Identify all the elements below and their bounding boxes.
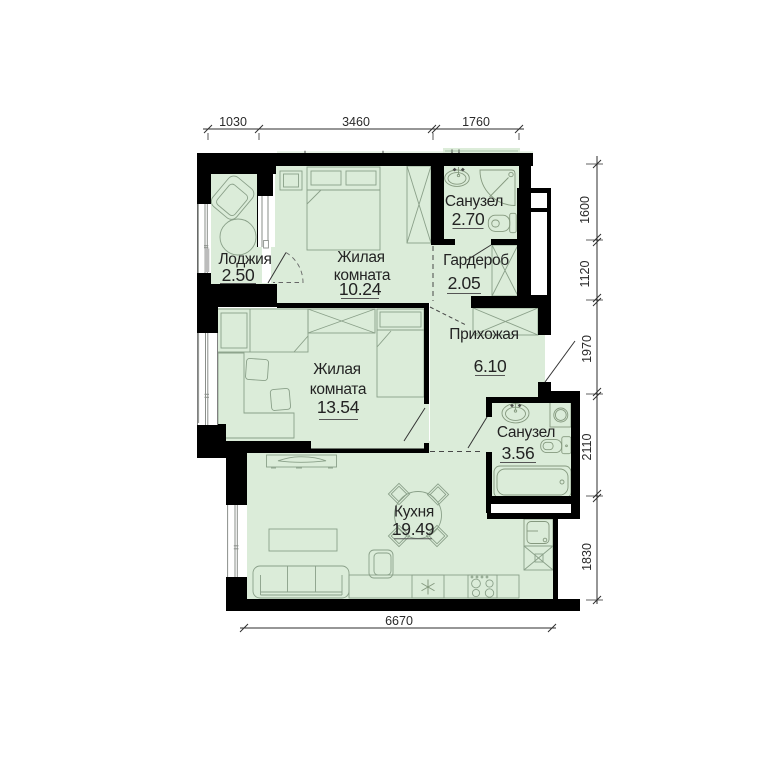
svg-text:1600: 1600 (578, 196, 592, 224)
svg-text:13.54: 13.54 (317, 397, 360, 417)
svg-text:6.10: 6.10 (474, 356, 507, 376)
svg-text:Жилая: Жилая (313, 361, 361, 378)
svg-text:10.24: 10.24 (339, 279, 382, 299)
svg-text:2.50: 2.50 (222, 265, 255, 285)
svg-text:2.70: 2.70 (452, 209, 485, 229)
svg-text:19.49: 19.49 (392, 519, 434, 539)
svg-text:комната: комната (310, 381, 367, 398)
svg-text:1830: 1830 (580, 543, 594, 571)
svg-text:1120: 1120 (578, 261, 592, 288)
svg-text:1030: 1030 (219, 115, 247, 129)
svg-text:Жилая: Жилая (337, 249, 385, 266)
svg-text:Санузел: Санузел (497, 424, 555, 441)
svg-text:Кухня: Кухня (394, 504, 434, 521)
svg-text:6670: 6670 (385, 614, 413, 628)
svg-text:Прихожая: Прихожая (449, 326, 518, 343)
svg-text:2110: 2110 (580, 434, 594, 461)
svg-text:Санузел: Санузел (445, 193, 503, 210)
svg-text:1970: 1970 (580, 335, 594, 363)
svg-text:3.56: 3.56 (502, 443, 535, 463)
svg-text:1760: 1760 (462, 115, 490, 129)
svg-text:Гардероб: Гардероб (443, 252, 509, 269)
svg-text:3460: 3460 (342, 115, 370, 129)
svg-text:2.05: 2.05 (448, 273, 481, 293)
